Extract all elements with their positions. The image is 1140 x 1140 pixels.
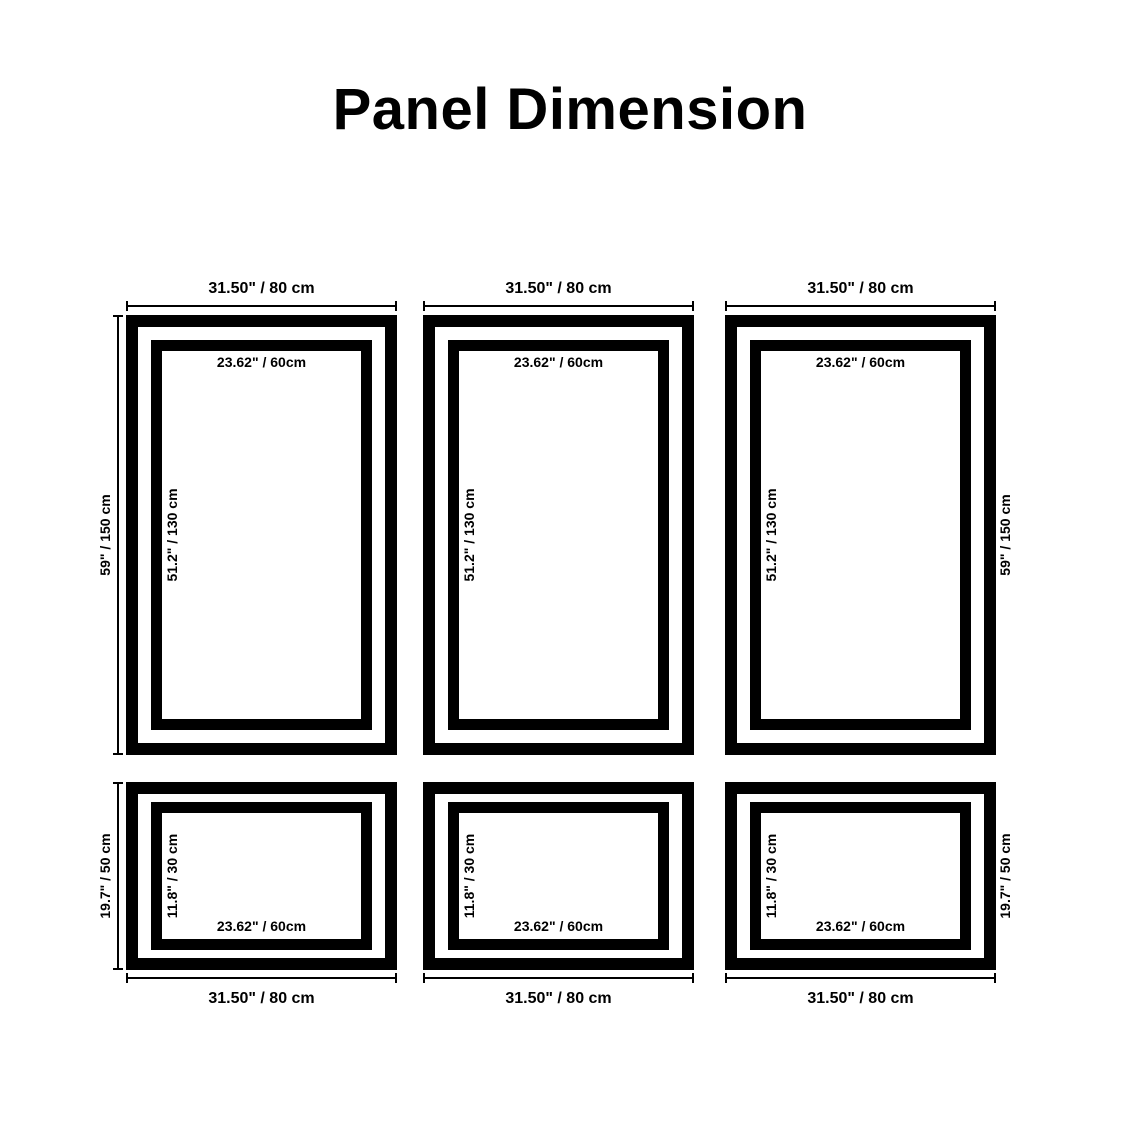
outer-frame: 23.62" / 60cm 11.8" / 30 cm	[126, 782, 397, 970]
panel-bottom-center: 31.50" / 80 cm 23.62" / 60cm 11.8" / 30 …	[423, 782, 694, 970]
height-dimension-label: 19.7" / 50 cm	[97, 833, 113, 918]
panel-bottom-left: 31.50" / 80 cm 19.7" / 50 cm 23.62" / 60…	[126, 782, 397, 970]
inner-height-label: 51.2" / 130 cm	[763, 488, 779, 581]
inner-width-label: 23.62" / 60cm	[761, 354, 960, 370]
panel-top-left: 31.50" / 80 cm 59" / 150 cm 23.62" / 60c…	[126, 315, 397, 755]
inner-height-label: 11.8" / 30 cm	[763, 834, 779, 918]
width-dimension-label: 31.50" / 80 cm	[101, 990, 422, 1008]
width-dimension-line	[423, 973, 694, 983]
page-title: Panel Dimension	[0, 76, 1140, 143]
outer-frame: 23.62" / 60cm 51.2" / 130 cm	[725, 315, 996, 755]
width-dimension-line	[725, 301, 996, 311]
inner-width-label: 23.62" / 60cm	[761, 918, 960, 934]
inner-width-label: 23.62" / 60cm	[459, 918, 658, 934]
inner-frame: 23.62" / 60cm 11.8" / 30 cm	[448, 802, 669, 950]
inner-width-label: 23.62" / 60cm	[459, 354, 658, 370]
inner-frame: 23.62" / 60cm 11.8" / 30 cm	[750, 802, 971, 950]
width-dimension-label: 31.50" / 80 cm	[700, 990, 1021, 1008]
inner-width-label: 23.62" / 60cm	[162, 354, 361, 370]
inner-height-label: 11.8" / 30 cm	[461, 834, 477, 918]
inner-width-label: 23.62" / 60cm	[162, 918, 361, 934]
width-dimension-line	[423, 301, 694, 311]
width-dimension-label: 31.50" / 80 cm	[398, 280, 719, 298]
outer-frame: 23.62" / 60cm 51.2" / 130 cm	[126, 315, 397, 755]
inner-height-label: 51.2" / 130 cm	[461, 488, 477, 581]
height-dimension-label: 19.7" / 50 cm	[997, 833, 1013, 918]
inner-frame: 23.62" / 60cm 51.2" / 130 cm	[448, 340, 669, 730]
inner-height-label: 11.8" / 30 cm	[164, 834, 180, 918]
panel-bottom-right: 31.50" / 80 cm 19.7" / 50 cm 23.62" / 60…	[725, 782, 996, 970]
height-dimension-label: 59" / 150 cm	[97, 494, 113, 575]
inner-frame: 23.62" / 60cm 51.2" / 130 cm	[151, 340, 372, 730]
outer-frame: 23.62" / 60cm 11.8" / 30 cm	[725, 782, 996, 970]
height-dimension-label: 59" / 150 cm	[997, 494, 1013, 575]
width-dimension-label: 31.50" / 80 cm	[700, 280, 1021, 298]
inner-height-label: 51.2" / 130 cm	[164, 488, 180, 581]
width-dimension-label: 31.50" / 80 cm	[101, 280, 422, 298]
inner-frame: 23.62" / 60cm 51.2" / 130 cm	[750, 340, 971, 730]
panel-top-center: 31.50" / 80 cm 23.62" / 60cm 51.2" / 130…	[423, 315, 694, 755]
height-dimension-line	[113, 782, 123, 970]
outer-frame: 23.62" / 60cm 51.2" / 130 cm	[423, 315, 694, 755]
width-dimension-line	[126, 301, 397, 311]
width-dimension-line	[126, 973, 397, 983]
width-dimension-label: 31.50" / 80 cm	[398, 990, 719, 1008]
height-dimension-line	[113, 315, 123, 755]
panel-top-right: 31.50" / 80 cm 59" / 150 cm 23.62" / 60c…	[725, 315, 996, 755]
inner-frame: 23.62" / 60cm 11.8" / 30 cm	[151, 802, 372, 950]
outer-frame: 23.62" / 60cm 11.8" / 30 cm	[423, 782, 694, 970]
width-dimension-line	[725, 973, 996, 983]
panel-dimension-diagram: Panel Dimension 31.50" / 80 cm 59" / 150…	[0, 0, 1140, 1140]
